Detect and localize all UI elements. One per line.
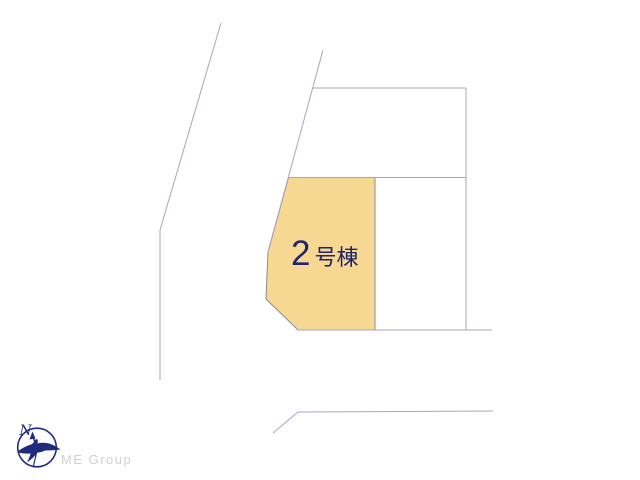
- south-road-boundary: [273, 411, 493, 433]
- compass-north-label: N: [19, 423, 33, 439]
- lot-suffix: 号棟: [314, 247, 358, 269]
- lot-label: 2 号棟: [291, 236, 358, 271]
- site-plan-canvas: 2 号棟 N ME Group: [0, 0, 640, 480]
- bird-logo-icon: [17, 439, 61, 462]
- compass-icon: N: [12, 419, 66, 473]
- lot-number: 2: [291, 236, 310, 271]
- me-group-logo-text: ME Group: [61, 452, 132, 467]
- road-boundary-left: [160, 23, 221, 380]
